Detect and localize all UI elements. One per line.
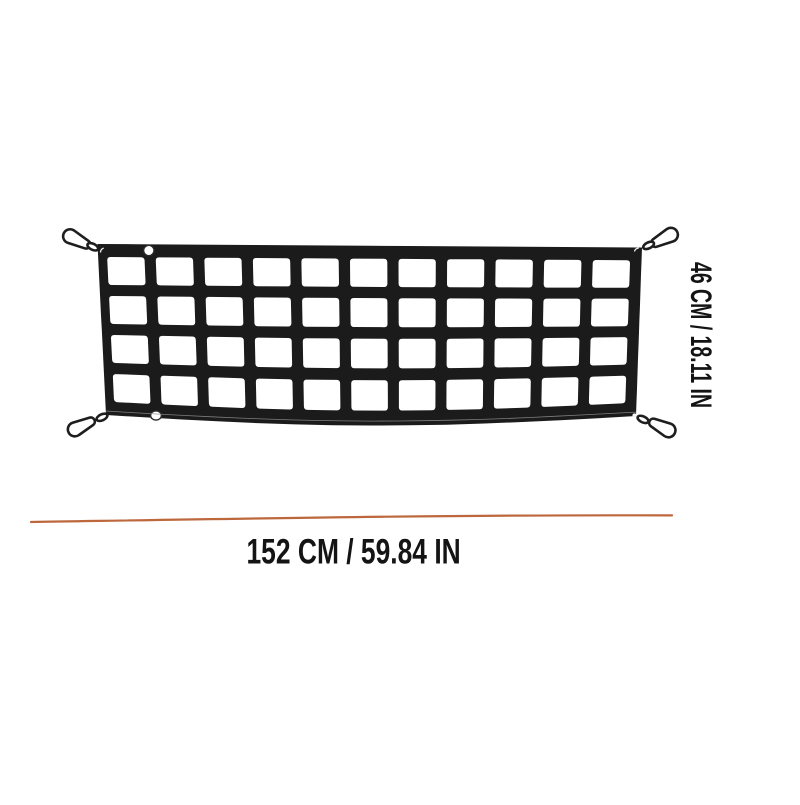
svg-text:46 CM / 18.11 IN: 46 CM / 18.11 IN bbox=[684, 262, 716, 408]
svg-text:152 CM / 59.84 IN: 152 CM / 59.84 IN bbox=[247, 532, 461, 572]
